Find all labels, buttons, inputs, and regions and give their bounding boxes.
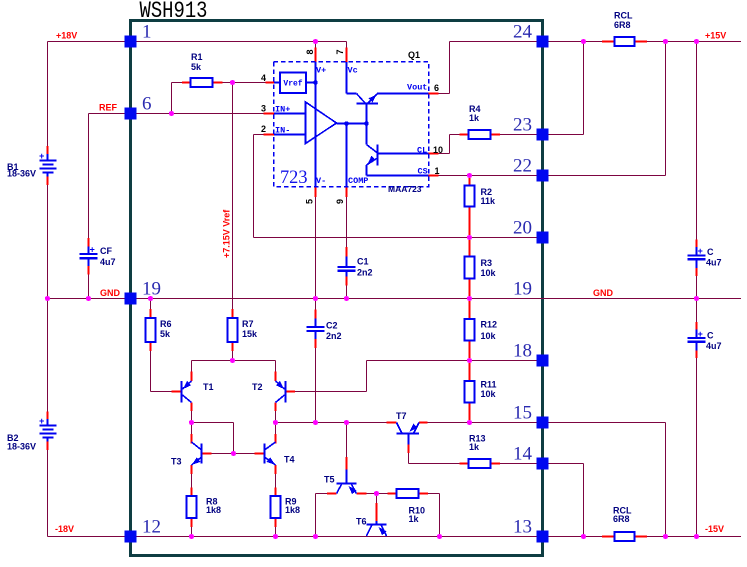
svg-text:+: +	[39, 152, 44, 162]
svg-text:+: +	[90, 246, 95, 256]
svg-text:Vout: Vout	[407, 83, 427, 93]
svg-text:9: 9	[335, 199, 345, 204]
svg-text:R6: R6	[160, 319, 172, 329]
svg-text:20: 20	[513, 218, 532, 239]
svg-text:6: 6	[434, 83, 439, 93]
svg-text:-18V: -18V	[55, 524, 74, 534]
svg-text:R12: R12	[481, 320, 498, 330]
svg-text:CF: CF	[100, 246, 112, 256]
svg-text:10: 10	[433, 145, 443, 155]
svg-text:24: 24	[513, 22, 533, 43]
svg-text:T7: T7	[396, 411, 407, 421]
svg-text:10k: 10k	[481, 389, 497, 399]
svg-text:R1: R1	[191, 52, 203, 62]
svg-text:V-: V-	[316, 176, 326, 186]
svg-text:8: 8	[305, 49, 315, 54]
svg-text:5: 5	[304, 199, 314, 204]
svg-text:1k: 1k	[469, 113, 480, 123]
svg-text:C: C	[707, 331, 714, 341]
svg-text:14: 14	[513, 444, 533, 465]
svg-text:6R8: 6R8	[613, 514, 630, 524]
svg-text:COMP: COMP	[348, 176, 368, 186]
svg-text:13: 13	[513, 517, 532, 538]
svg-text:4: 4	[261, 73, 266, 83]
svg-text:4u7: 4u7	[100, 257, 116, 267]
svg-text:11k: 11k	[481, 196, 497, 206]
svg-text:+: +	[698, 330, 703, 340]
svg-text:1k: 1k	[409, 514, 420, 524]
svg-text:C1: C1	[357, 257, 369, 267]
svg-text:1: 1	[142, 22, 152, 43]
svg-text:18-36V: 18-36V	[7, 442, 36, 452]
svg-text:4u7: 4u7	[706, 258, 722, 268]
svg-text:T3: T3	[171, 457, 182, 467]
svg-text:REF: REF	[99, 103, 118, 113]
svg-text:15k: 15k	[242, 329, 258, 339]
svg-text:3: 3	[261, 104, 266, 114]
svg-text:10k: 10k	[481, 331, 497, 341]
svg-text:T6: T6	[356, 517, 367, 527]
svg-text:WSH913: WSH913	[140, 0, 208, 24]
svg-text:Vref: Vref	[283, 80, 302, 89]
svg-text:T5: T5	[324, 475, 335, 485]
svg-text:1k8: 1k8	[206, 505, 221, 515]
svg-text:+18V: +18V	[56, 31, 77, 41]
svg-text:22: 22	[513, 156, 532, 177]
svg-text:+: +	[39, 417, 44, 427]
svg-text:GND: GND	[100, 288, 121, 298]
svg-text:19: 19	[513, 279, 532, 300]
svg-text:+: +	[698, 247, 703, 257]
svg-text:R3: R3	[481, 258, 493, 268]
svg-text:Vc: Vc	[348, 66, 358, 76]
svg-text:2: 2	[261, 124, 266, 134]
svg-text:RCL: RCL	[614, 11, 633, 21]
svg-text:R11: R11	[481, 380, 497, 390]
svg-text:10k: 10k	[481, 268, 497, 278]
svg-text:2n2: 2n2	[326, 331, 342, 341]
svg-text:5k: 5k	[191, 62, 202, 72]
svg-text:C2: C2	[326, 321, 338, 331]
svg-text:-15V: -15V	[705, 524, 724, 534]
svg-text:23: 23	[513, 115, 532, 136]
svg-text:18: 18	[513, 341, 532, 362]
svg-text:12: 12	[142, 517, 161, 538]
svg-text:1k8: 1k8	[285, 505, 300, 515]
svg-text:2n2: 2n2	[357, 268, 373, 278]
svg-text:T2: T2	[252, 382, 263, 392]
svg-text:18-36V: 18-36V	[7, 169, 36, 179]
svg-text:MAA723: MAA723	[388, 184, 422, 194]
svg-text:GND: GND	[593, 288, 614, 298]
svg-text:723: 723	[280, 168, 308, 188]
svg-text:6R8: 6R8	[614, 20, 631, 30]
svg-text:IN+: IN+	[275, 105, 290, 115]
svg-text:+7.15V Vref: +7.15V Vref	[222, 209, 232, 258]
svg-text:V+: V+	[316, 66, 326, 76]
svg-text:IN-: IN-	[275, 126, 290, 136]
svg-text:Q1: Q1	[408, 50, 420, 60]
svg-text:T4: T4	[284, 455, 295, 465]
svg-text:1: 1	[435, 166, 440, 176]
svg-text:R7: R7	[242, 319, 254, 329]
svg-text:4u7: 4u7	[706, 341, 722, 351]
svg-text:1k: 1k	[469, 442, 480, 452]
svg-text:7: 7	[335, 49, 345, 54]
svg-text:C: C	[707, 247, 714, 257]
svg-text:+15V: +15V	[705, 31, 726, 41]
svg-text:6: 6	[142, 94, 152, 115]
svg-text:15: 15	[513, 403, 532, 424]
svg-text:T1: T1	[203, 382, 214, 392]
svg-text:CL: CL	[417, 146, 427, 156]
svg-text:CS: CS	[418, 167, 428, 177]
svg-text:5k: 5k	[160, 329, 171, 339]
